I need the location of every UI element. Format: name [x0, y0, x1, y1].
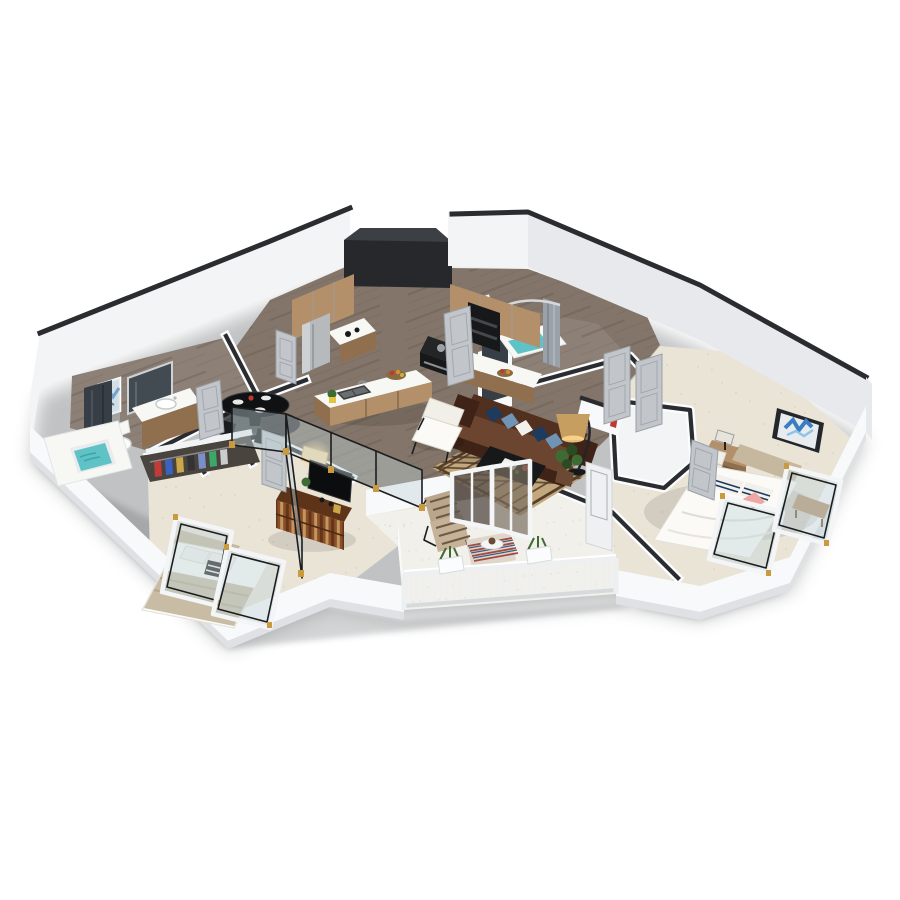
brass-hinge — [229, 441, 235, 448]
floor-plan-render — [0, 0, 900, 900]
shower-curtain — [543, 298, 560, 368]
closet-door-right-a — [604, 346, 630, 424]
bath-top-door — [444, 306, 474, 386]
place-setting — [233, 399, 244, 404]
brass-hinge — [373, 485, 379, 492]
closet-door-right-b — [636, 354, 662, 432]
entry-door — [276, 330, 296, 384]
brass-hinge — [328, 466, 334, 473]
brass-hinge — [298, 570, 304, 577]
place-setting — [261, 396, 271, 401]
brass-hinge — [283, 448, 289, 455]
bath-left-door — [196, 380, 224, 440]
patio-open-door — [586, 462, 612, 551]
vanity-sink — [156, 399, 176, 409]
bedroom-right-door — [688, 440, 718, 500]
dresser-plant — [302, 478, 311, 487]
centerpiece — [248, 395, 253, 400]
brass-hinge — [419, 504, 425, 511]
